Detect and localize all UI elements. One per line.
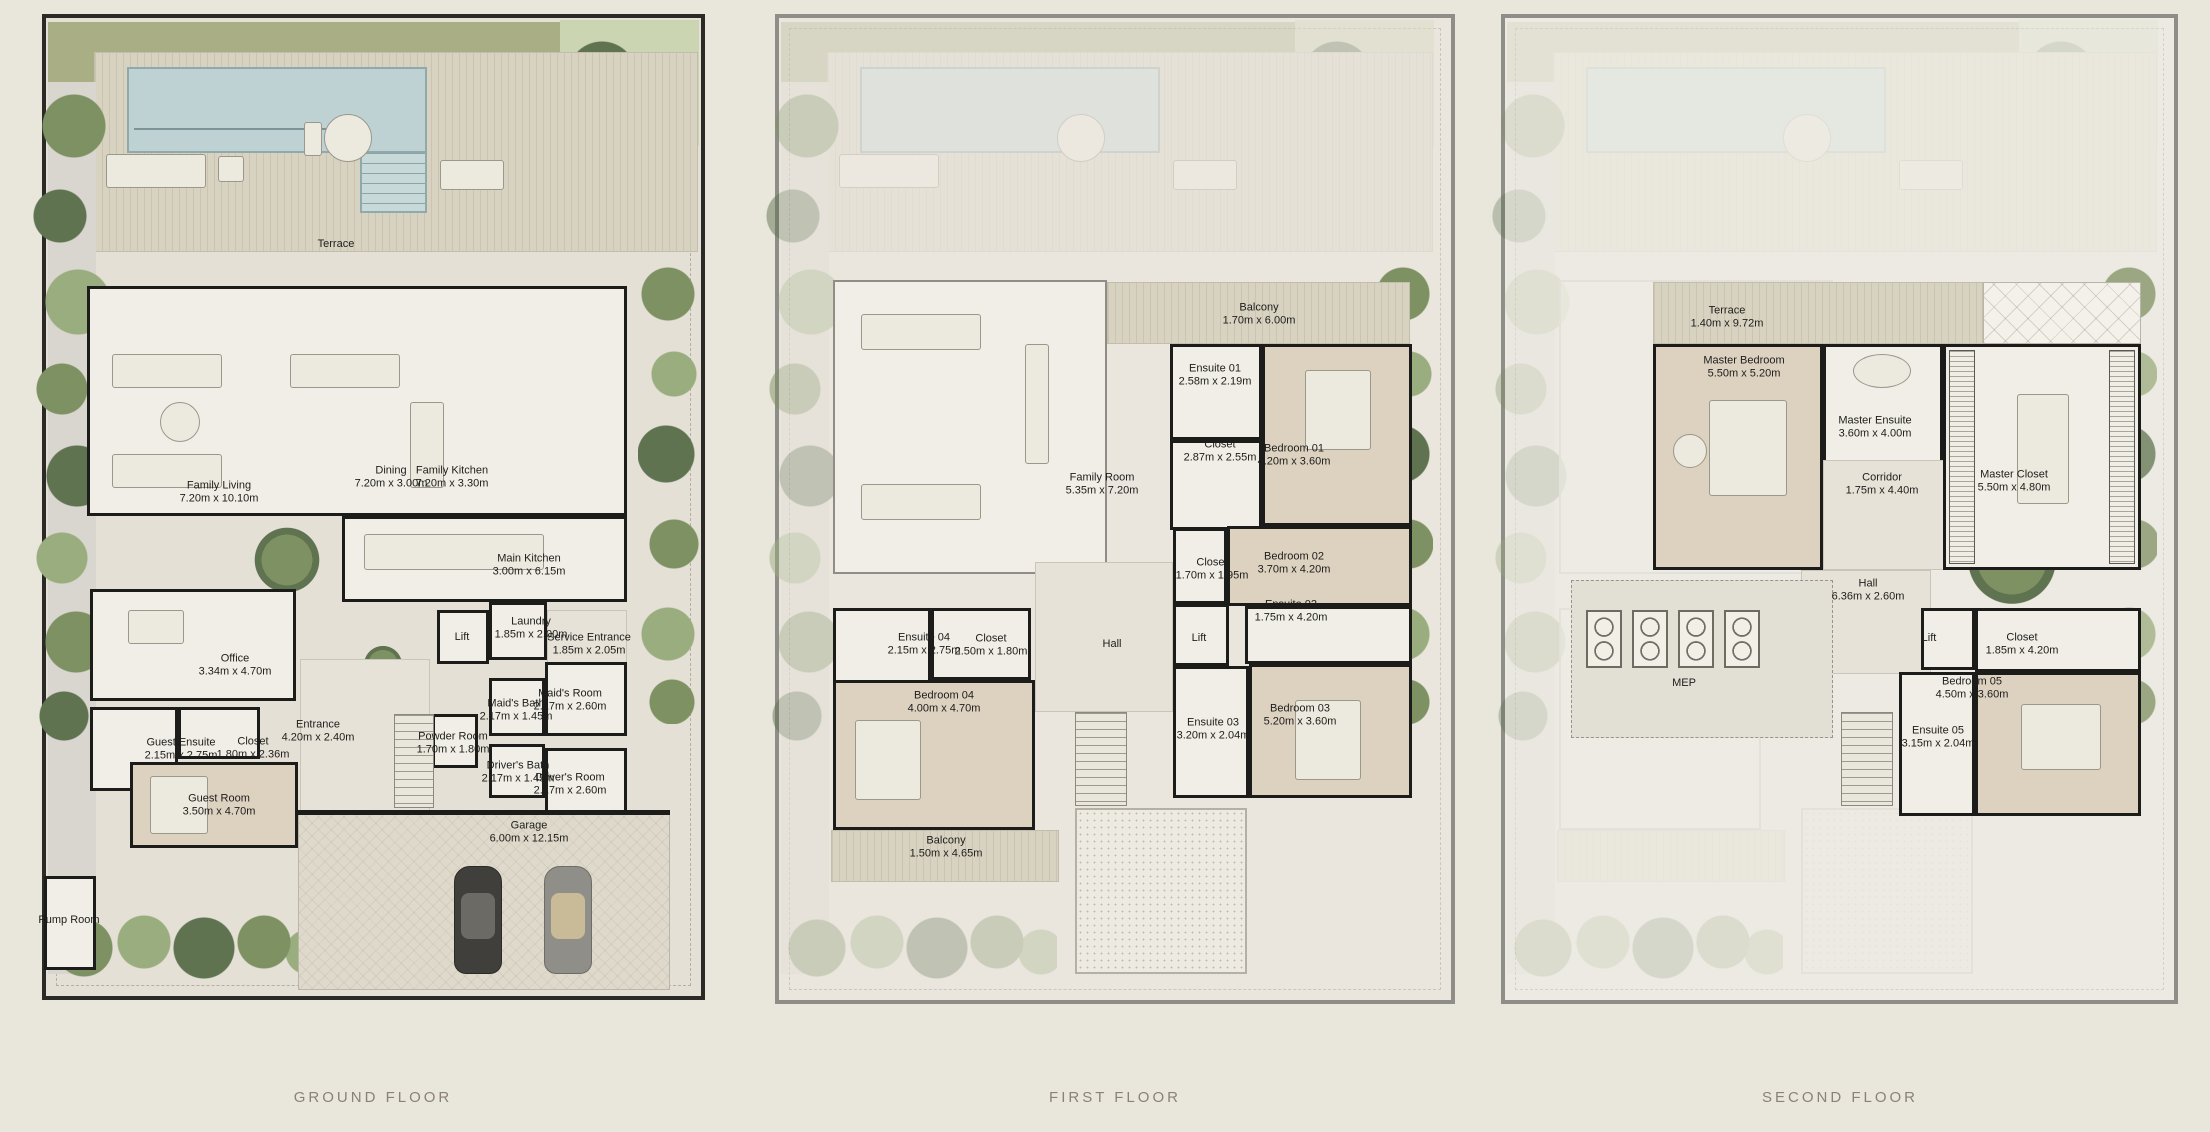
room-label: Closet 1.80m x 2.36m: [217, 736, 290, 761]
room-dimensions: 1.85m x 2.05m: [547, 644, 631, 657]
room-name: Office: [199, 653, 272, 666]
room-name: Master Closet: [1978, 469, 2051, 482]
room-name: Ensuite 04: [888, 632, 961, 645]
room-label: Bedroom 02 3.70m x 4.20m: [1258, 551, 1331, 576]
ground-floor-title: GROUND FLOOR: [294, 1089, 453, 1106]
room-name: Laundry: [495, 616, 568, 629]
room-dimensions: 3.34m x 4.70m: [199, 665, 272, 678]
room-name: Pump Room: [38, 914, 99, 927]
room-dimensions: 2.17m x 2.60m: [534, 700, 607, 713]
room-name: Ensuite 01: [1179, 363, 1252, 376]
room-label: Lift: [1192, 632, 1207, 645]
room-name: Bedroom 04: [908, 690, 981, 703]
room-dimensions: 2.15m x 2.75m: [888, 644, 961, 657]
room-dimensions: 1.75m x 4.20m: [1255, 611, 1328, 624]
room-dimensions: 3.00m x 6.15m: [493, 565, 566, 578]
room-label: Bedroom 01 4.20m x 3.60m: [1258, 443, 1331, 468]
ground-floor-labels: Terrace Family Living 7.20m x 10.10m Din…: [42, 14, 705, 1000]
room-name: Lift: [1192, 632, 1207, 645]
room-label: Terrace 1.40m x 9.72m: [1691, 305, 1764, 330]
room-label: Closet 1.70m x 1.95m: [1176, 557, 1249, 582]
room-name: Driver's Bath: [482, 760, 555, 773]
second-floor-plan: Terrace 1.40m x 9.72m Master Bedroom 5.5…: [1501, 14, 2178, 1004]
room-label: Bedroom 04 4.00m x 4.70m: [908, 690, 981, 715]
room-dimensions: 3.60m x 4.00m: [1838, 427, 1911, 440]
room-dimensions: 2.87m x 2.55m: [1184, 451, 1257, 464]
room-label: Lift: [1922, 632, 1937, 645]
room-name: Ensuite 05: [1902, 725, 1975, 738]
room-name: Balcony: [1223, 302, 1296, 315]
room-label: Master Closet 5.50m x 4.80m: [1978, 469, 2051, 494]
room-dimensions: 3.50m x 4.70m: [183, 805, 256, 818]
room-label: Bedroom 03 5.20m x 3.60m: [1264, 703, 1337, 728]
room-dimensions: 2.58m x 2.19m: [1179, 375, 1252, 388]
room-label: Service Entrance 1.85m x 2.05m: [547, 632, 631, 657]
room-label: Master Bedroom 5.50m x 5.20m: [1703, 355, 1784, 380]
room-name: Bedroom 05: [1936, 676, 2009, 689]
room-name: Family Kitchen: [416, 465, 489, 478]
room-dimensions: 7.20m x 10.10m: [180, 492, 259, 505]
room-name: Lift: [455, 631, 470, 644]
room-dimensions: 4.20m x 2.40m: [282, 731, 355, 744]
room-dimensions: 1.85m x 4.20m: [1986, 644, 2059, 657]
room-dimensions: 5.20m x 3.60m: [1264, 715, 1337, 728]
room-dimensions: 1.70m x 6.00m: [1223, 314, 1296, 327]
room-label: Powder Room 1.70m x 1.80m: [417, 731, 490, 756]
room-name: Master Ensuite: [1838, 415, 1911, 428]
room-label: Entrance 4.20m x 2.40m: [282, 719, 355, 744]
room-name: MEP: [1672, 677, 1696, 690]
room-label: Closet 1.85m x 4.20m: [1986, 632, 2059, 657]
room-dimensions: 7.20m x 3.30m: [416, 477, 489, 490]
room-dimensions: 5.50m x 5.20m: [1703, 367, 1784, 380]
room-label: Lift: [455, 631, 470, 644]
room-dimensions: 4.20m x 3.60m: [1258, 455, 1331, 468]
room-name: Closet: [1184, 439, 1257, 452]
room-name: Ensuite 03: [1177, 717, 1250, 730]
floor-plan-sheet: Terrace Family Living 7.20m x 10.10m Din…: [0, 0, 2210, 1132]
room-dimensions: 2.15m x 2.75m: [145, 749, 218, 762]
room-label: Garage 6.00m x 12.15m: [490, 820, 569, 845]
room-dimensions: 3.15m x 2.04m: [1902, 737, 1975, 750]
first-floor-labels: Balcony 1.70m x 6.00m Ensuite 01 2.58m x…: [775, 14, 1455, 1004]
room-label: Guest Ensuite 2.15m x 2.75m: [145, 737, 218, 762]
room-name: Closet: [217, 736, 290, 749]
room-label: Main Kitchen 3.00m x 6.15m: [493, 553, 566, 578]
room-name: Corridor: [1846, 472, 1919, 485]
room-name: Bedroom 02: [1258, 551, 1331, 564]
room-label: Office 3.34m x 4.70m: [199, 653, 272, 678]
second-floor-title: SECOND FLOOR: [1762, 1089, 1918, 1106]
room-dimensions: 1.75m x 4.40m: [1846, 484, 1919, 497]
room-name: Guest Room: [183, 793, 256, 806]
room-name: Hall: [1832, 578, 1905, 591]
room-dimensions: 1.70m x 1.80m: [417, 743, 490, 756]
room-name: Powder Room: [417, 731, 490, 744]
room-label: Driver's Room 2.17m x 2.60m: [534, 772, 607, 797]
room-label: Closet 2.87m x 2.55m: [1184, 439, 1257, 464]
room-name: Balcony: [910, 835, 983, 848]
room-name: Closet: [955, 633, 1028, 646]
room-label: Ensuite 02 1.75m x 4.20m: [1255, 599, 1328, 624]
room-label: Ensuite 04 2.15m x 2.75m: [888, 632, 961, 657]
room-dimensions: 1.80m x 2.36m: [217, 748, 290, 761]
room-label: Ensuite 01 2.58m x 2.19m: [1179, 363, 1252, 388]
room-name: Garage: [490, 820, 569, 833]
room-dimensions: 1.50m x 4.65m: [910, 847, 983, 860]
room-name: Bedroom 01: [1258, 443, 1331, 456]
room-label: Guest Room 3.50m x 4.70m: [183, 793, 256, 818]
room-label: Maid's Room 2.17m x 2.60m: [534, 688, 607, 713]
room-dimensions: 1.40m x 9.72m: [1691, 317, 1764, 330]
room-dimensions: 6.00m x 12.15m: [490, 832, 569, 845]
room-dimensions: 4.50m x 3.60m: [1936, 688, 2009, 701]
room-name: Family Room: [1066, 472, 1139, 485]
room-name: Ensuite 02: [1255, 599, 1328, 612]
room-name: Maid's Room: [534, 688, 607, 701]
room-name: Main Kitchen: [493, 553, 566, 566]
room-label: Closet 2.50m x 1.80m: [955, 633, 1028, 658]
room-name: Lift: [1922, 632, 1937, 645]
room-label: Terrace: [318, 238, 355, 251]
room-name: Master Bedroom: [1703, 355, 1784, 368]
room-label: Family Kitchen 7.20m x 3.30m: [416, 465, 489, 490]
room-dimensions: 2.17m x 2.60m: [534, 784, 607, 797]
second-floor-labels: Terrace 1.40m x 9.72m Master Bedroom 5.5…: [1501, 14, 2178, 1004]
room-name: Terrace: [1691, 305, 1764, 318]
room-label: Bedroom 05 4.50m x 3.60m: [1936, 676, 2009, 701]
room-label: Ensuite 03 3.20m x 2.04m: [1177, 717, 1250, 742]
room-name: Closet: [1986, 632, 2059, 645]
room-label: Balcony 1.50m x 4.65m: [910, 835, 983, 860]
room-label: Master Ensuite 3.60m x 4.00m: [1838, 415, 1911, 440]
room-name: Bedroom 03: [1264, 703, 1337, 716]
room-name: Service Entrance: [547, 632, 631, 645]
room-label: Corridor 1.75m x 4.40m: [1846, 472, 1919, 497]
room-dimensions: 4.00m x 4.70m: [908, 702, 981, 715]
room-name: Closet: [1176, 557, 1249, 570]
room-dimensions: 1.70m x 1.95m: [1176, 569, 1249, 582]
room-dimensions: 3.20m x 2.04m: [1177, 729, 1250, 742]
room-label: Family Room 5.35m x 7.20m: [1066, 472, 1139, 497]
room-name: Terrace: [318, 238, 355, 251]
first-floor-plan: Balcony 1.70m x 6.00m Ensuite 01 2.58m x…: [775, 14, 1455, 1004]
room-label: Pump Room: [38, 914, 99, 927]
room-label: MEP: [1672, 677, 1696, 690]
room-label: Hall 6.36m x 2.60m: [1832, 578, 1905, 603]
room-name: Driver's Room: [534, 772, 607, 785]
room-dimensions: 5.35m x 7.20m: [1066, 484, 1139, 497]
room-label: Hall: [1103, 638, 1122, 651]
room-dimensions: 3.70m x 4.20m: [1258, 563, 1331, 576]
ground-floor-plan: Terrace Family Living 7.20m x 10.10m Din…: [42, 14, 705, 1000]
room-name: Guest Ensuite: [145, 737, 218, 750]
room-name: Family Living: [180, 480, 259, 493]
room-label: Ensuite 05 3.15m x 2.04m: [1902, 725, 1975, 750]
room-dimensions: 6.36m x 2.60m: [1832, 590, 1905, 603]
room-name: Hall: [1103, 638, 1122, 651]
room-label: Balcony 1.70m x 6.00m: [1223, 302, 1296, 327]
room-dimensions: 5.50m x 4.80m: [1978, 481, 2051, 494]
room-dimensions: 2.50m x 1.80m: [955, 645, 1028, 658]
first-floor-title: FIRST FLOOR: [1049, 1089, 1181, 1106]
room-name: Entrance: [282, 719, 355, 732]
room-label: Family Living 7.20m x 10.10m: [180, 480, 259, 505]
